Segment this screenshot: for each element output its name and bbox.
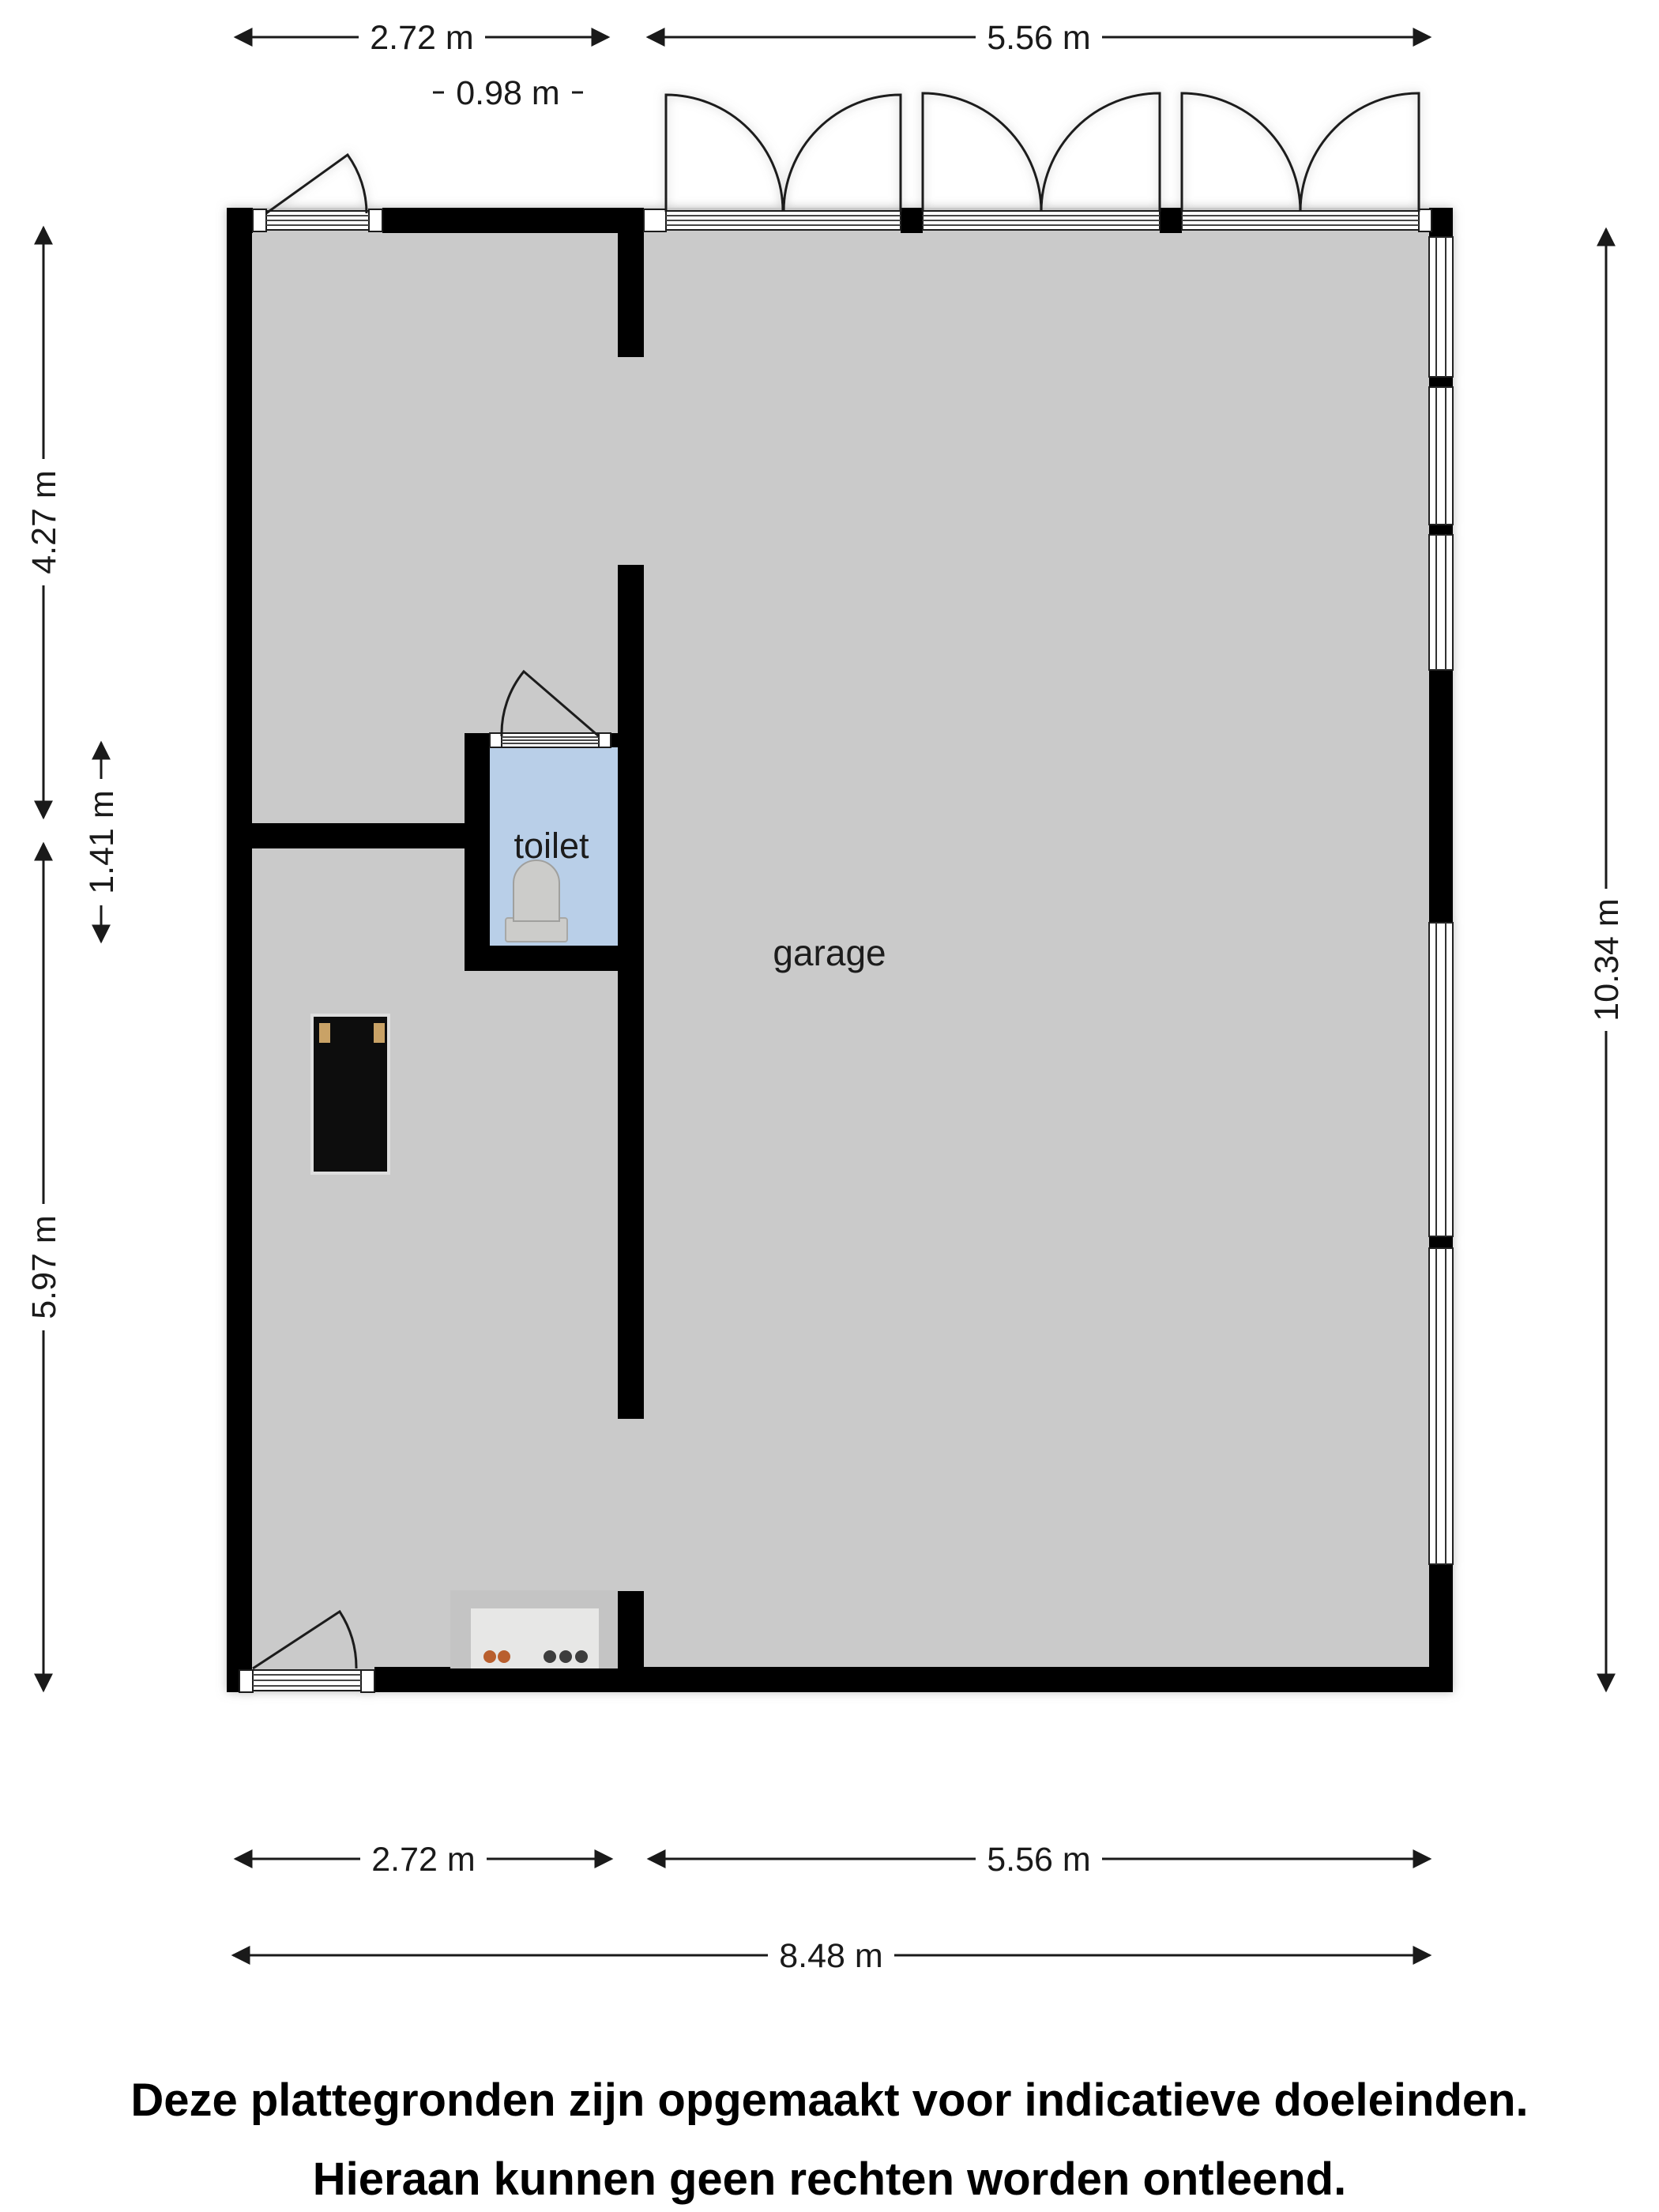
cabinet-hinge <box>319 1023 330 1043</box>
wall-vertical-bottom <box>618 1591 644 1668</box>
dimension-label: 2.72 m <box>371 1841 475 1879</box>
window-mullion-1 <box>1429 377 1453 387</box>
disclaimer: Deze plattegronden zijn opgemaakt voor i… <box>130 2075 1528 2205</box>
door-jamb <box>1419 209 1431 231</box>
counter-knob-orange <box>483 1650 496 1663</box>
door-jamb <box>361 1670 374 1692</box>
top-wall-separator-1 <box>901 208 923 233</box>
counter-knob-dark <box>575 1650 588 1663</box>
top-wall-separator-2 <box>1160 208 1182 233</box>
toilet-left-wall <box>465 733 490 971</box>
counter-knob-dark <box>544 1650 556 1663</box>
window-3 <box>1429 535 1453 670</box>
dimension-top-098: 0.98 m <box>433 74 583 112</box>
dimension-left-597: 5.97 m <box>25 844 63 1691</box>
toilet-door-jamb-right <box>599 733 611 747</box>
wall-stub-top <box>618 233 644 357</box>
workbench-counter <box>450 1590 618 1668</box>
entry-door-top-left <box>253 155 382 231</box>
floor-plan: toilet <box>227 93 1453 1692</box>
left-wall <box>227 208 252 1692</box>
right-wall-bottom <box>1429 1564 1453 1692</box>
garage-doors <box>644 93 1431 231</box>
door-jamb <box>369 209 382 231</box>
dimension-top-272: 2.72 m <box>235 19 608 57</box>
window-5 <box>1429 1248 1453 1564</box>
window-mullion-3 <box>1429 1236 1453 1248</box>
door-jamb <box>253 209 266 231</box>
window-4 <box>1429 923 1453 1236</box>
dimension-top-556: 5.56 m <box>648 19 1430 57</box>
toilet-label: toilet <box>513 826 589 866</box>
dimension-label: 10.34 m <box>1588 898 1626 1021</box>
dimension-label: 4.27 m <box>25 470 63 574</box>
right-wall-mid <box>1429 670 1453 923</box>
toilet-door-jamb-left <box>490 733 502 747</box>
top-wall-mid <box>382 208 644 233</box>
dimension-left-141: 1.41 m <box>83 743 121 942</box>
dimension-label: 5.56 m <box>987 19 1090 57</box>
wall-vertical-mid <box>618 565 644 1419</box>
toilet-bowl <box>513 860 559 921</box>
door-swing <box>266 155 367 213</box>
counter-knob-orange <box>498 1650 510 1663</box>
toilet-bottom-wall <box>465 946 644 971</box>
dimension-right-1034: 10.34 m <box>1588 229 1626 1691</box>
wall-divider-left <box>252 823 482 848</box>
dimension-label: 2.72 m <box>370 19 473 57</box>
window-mullion-2 <box>1429 525 1453 535</box>
dimension-bottom-272: 2.72 m <box>235 1841 611 1879</box>
dimension-bottom-556: 5.56 m <box>649 1841 1430 1879</box>
disclaimer-line-1: Deze plattegronden zijn opgemaakt voor i… <box>130 2075 1528 2126</box>
dimension-label: 5.56 m <box>987 1841 1090 1879</box>
dimension-label: 5.97 m <box>25 1215 63 1319</box>
bottom-wall-left <box>227 1667 239 1692</box>
garage-label: garage <box>773 932 886 973</box>
dimension-left-427: 4.27 m <box>25 228 63 818</box>
dimension-label: 0.98 m <box>456 74 559 112</box>
right-wall-top <box>1429 208 1453 237</box>
toilet-door-filler <box>611 733 620 747</box>
top-wall-corner <box>227 208 253 233</box>
cabinet-hinge <box>374 1023 385 1043</box>
window-1 <box>1429 237 1453 377</box>
disclaimer-line-2: Hieraan kunnen geen rechten worden ontle… <box>313 2154 1346 2205</box>
dimension-label: 1.41 m <box>83 790 121 893</box>
dimension-label: 8.48 m <box>779 1937 882 1975</box>
dimension-bottom-848: 8.48 m <box>233 1937 1430 1975</box>
floor-plan-canvas: toilet <box>0 0 1659 2212</box>
door-jamb <box>239 1670 253 1692</box>
bottom-wall-main <box>374 1667 1453 1692</box>
counter-knob-dark <box>559 1650 572 1663</box>
door-jamb <box>644 209 666 231</box>
cabinet <box>312 1015 389 1173</box>
window-2 <box>1429 387 1453 525</box>
